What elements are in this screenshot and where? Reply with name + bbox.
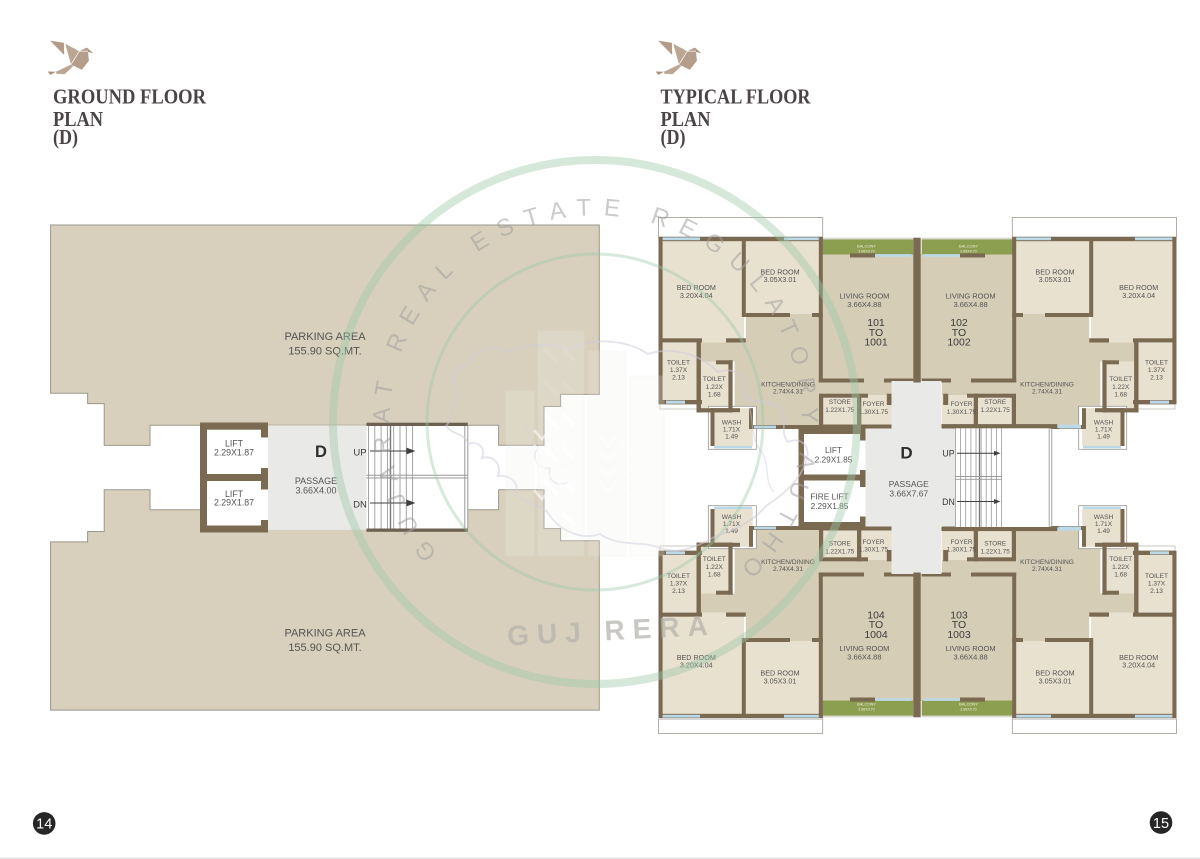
svg-text:1.49: 1.49 xyxy=(1097,528,1110,535)
svg-text:(D): (D) xyxy=(53,125,78,149)
svg-text:155.90 SQ.MT.: 155.90 SQ.MT. xyxy=(288,346,361,358)
svg-text:FOYER: FOYER xyxy=(862,539,884,546)
svg-text:D: D xyxy=(315,443,327,461)
svg-text:TOILET: TOILET xyxy=(1145,573,1168,580)
svg-text:1.22X1.75: 1.22X1.75 xyxy=(981,407,1011,414)
svg-text:KITCHEN/DINING: KITCHEN/DINING xyxy=(1020,559,1074,566)
svg-text:3.66X4.88: 3.66X4.88 xyxy=(953,300,987,309)
svg-text:3.20X4.04: 3.20X4.04 xyxy=(1122,291,1155,300)
svg-text:1.30X1.75: 1.30X1.75 xyxy=(859,409,889,416)
svg-text:TOILET: TOILET xyxy=(667,359,690,366)
svg-text:BALCONY: BALCONY xyxy=(959,701,978,706)
svg-text:3.05X3.01: 3.05X3.01 xyxy=(1039,275,1072,284)
svg-text:1003: 1003 xyxy=(947,629,971,641)
svg-text:2.13: 2.13 xyxy=(1150,588,1163,595)
svg-text:155.90 SQ.MT.: 155.90 SQ.MT. xyxy=(288,642,361,654)
svg-text:UP: UP xyxy=(353,447,366,458)
svg-text:1.22X1.75: 1.22X1.75 xyxy=(825,407,855,414)
svg-text:2.29X1.87: 2.29X1.87 xyxy=(214,447,254,457)
svg-text:1.22X: 1.22X xyxy=(1112,564,1130,571)
svg-text:TOILET: TOILET xyxy=(1109,556,1132,563)
svg-text:1.22X: 1.22X xyxy=(706,384,724,391)
svg-text:PARKING AREA: PARKING AREA xyxy=(284,331,366,343)
svg-text:1.30X1.75: 1.30X1.75 xyxy=(859,547,889,554)
svg-text:3.66X0.70: 3.66X0.70 xyxy=(858,250,874,254)
svg-text:D: D xyxy=(900,444,912,463)
svg-text:UP: UP xyxy=(942,449,954,459)
svg-text:3.66X0.70: 3.66X0.70 xyxy=(858,707,874,711)
svg-text:1.68: 1.68 xyxy=(708,571,721,578)
svg-text:1002: 1002 xyxy=(947,337,971,349)
svg-text:1.30X1.75: 1.30X1.75 xyxy=(947,409,977,416)
svg-text:(D): (D) xyxy=(661,125,686,149)
svg-text:1.22X1.75: 1.22X1.75 xyxy=(981,548,1011,555)
svg-text:WASH: WASH xyxy=(722,419,742,426)
svg-text:1.71X: 1.71X xyxy=(1095,521,1113,528)
svg-text:2.13: 2.13 xyxy=(1150,375,1163,382)
svg-text:2.13: 2.13 xyxy=(672,375,685,382)
svg-text:PASSAGE: PASSAGE xyxy=(295,476,337,486)
svg-text:LIFT: LIFT xyxy=(825,445,842,455)
svg-text:1.68: 1.68 xyxy=(1114,391,1127,398)
svg-text:3.66X4.88: 3.66X4.88 xyxy=(847,652,881,661)
svg-text:3.66X0.70: 3.66X0.70 xyxy=(960,707,976,711)
svg-text:1.68: 1.68 xyxy=(1114,571,1127,578)
svg-text:1.68: 1.68 xyxy=(708,391,721,398)
svg-text:14: 14 xyxy=(36,817,52,833)
svg-text:2.74X4.31: 2.74X4.31 xyxy=(1032,566,1062,573)
svg-text:3.66X4.00: 3.66X4.00 xyxy=(295,486,336,496)
svg-text:3.66X0.70: 3.66X0.70 xyxy=(960,250,976,254)
svg-text:1.49: 1.49 xyxy=(725,433,738,440)
svg-text:BALCONY: BALCONY xyxy=(959,244,978,249)
svg-text:TOILET: TOILET xyxy=(1109,376,1132,383)
svg-text:1001: 1001 xyxy=(864,337,888,349)
svg-text:TOILET: TOILET xyxy=(703,376,726,383)
svg-text:KITCHEN/DINING: KITCHEN/DINING xyxy=(1020,381,1074,388)
svg-text:DN: DN xyxy=(942,497,955,507)
svg-text:FOYER: FOYER xyxy=(950,401,972,408)
svg-text:TYPICAL FLOOR: TYPICAL FLOOR xyxy=(661,85,811,109)
svg-text:1.37X: 1.37X xyxy=(1148,581,1166,588)
svg-text:2.29X1.85: 2.29X1.85 xyxy=(815,455,853,465)
svg-text:FOYER: FOYER xyxy=(862,401,884,408)
svg-text:1.22X: 1.22X xyxy=(706,564,724,571)
svg-text:2.13: 2.13 xyxy=(672,588,685,595)
svg-text:BALCONY: BALCONY xyxy=(857,701,876,706)
svg-text:FOYER: FOYER xyxy=(950,539,972,546)
svg-text:PARKING AREA: PARKING AREA xyxy=(284,628,366,640)
svg-text:3.66X4.88: 3.66X4.88 xyxy=(953,652,987,661)
svg-text:2.74X4.31: 2.74X4.31 xyxy=(773,566,803,573)
svg-text:TOILET: TOILET xyxy=(1145,359,1168,366)
svg-text:1.22X: 1.22X xyxy=(1112,384,1130,391)
svg-text:15: 15 xyxy=(1153,816,1169,832)
svg-text:3.66X4.88: 3.66X4.88 xyxy=(847,300,881,309)
svg-text:2.29X1.87: 2.29X1.87 xyxy=(214,498,254,508)
svg-text:3.66X7.67: 3.66X7.67 xyxy=(889,489,928,499)
svg-text:BALCONY: BALCONY xyxy=(857,244,876,249)
svg-text:GROUND FLOOR: GROUND FLOOR xyxy=(53,85,206,109)
svg-text:1.30X1.75: 1.30X1.75 xyxy=(947,547,977,554)
svg-text:1.37X: 1.37X xyxy=(670,581,688,588)
svg-text:TOILET: TOILET xyxy=(667,573,690,580)
svg-text:2.74X4.31: 2.74X4.31 xyxy=(1032,388,1062,395)
svg-text:PASSAGE: PASSAGE xyxy=(889,479,929,489)
svg-text:1.37X: 1.37X xyxy=(1148,367,1166,374)
svg-text:STORE: STORE xyxy=(984,399,1006,406)
svg-text:1.49: 1.49 xyxy=(1097,433,1110,440)
svg-text:3.05X3.01: 3.05X3.01 xyxy=(1039,676,1072,685)
svg-text:TOILET: TOILET xyxy=(703,556,726,563)
svg-text:WASH: WASH xyxy=(1094,419,1114,426)
svg-text:STORE: STORE xyxy=(829,399,851,406)
svg-text:1.37X: 1.37X xyxy=(670,367,688,374)
svg-text:1004: 1004 xyxy=(864,629,888,641)
svg-text:DN: DN xyxy=(353,499,367,510)
svg-text:1.22X1.75: 1.22X1.75 xyxy=(825,548,855,555)
svg-text:3.05X3.01: 3.05X3.01 xyxy=(764,676,797,685)
svg-text:3.20X4.04: 3.20X4.04 xyxy=(1122,661,1155,670)
svg-text:STORE: STORE xyxy=(984,541,1006,548)
